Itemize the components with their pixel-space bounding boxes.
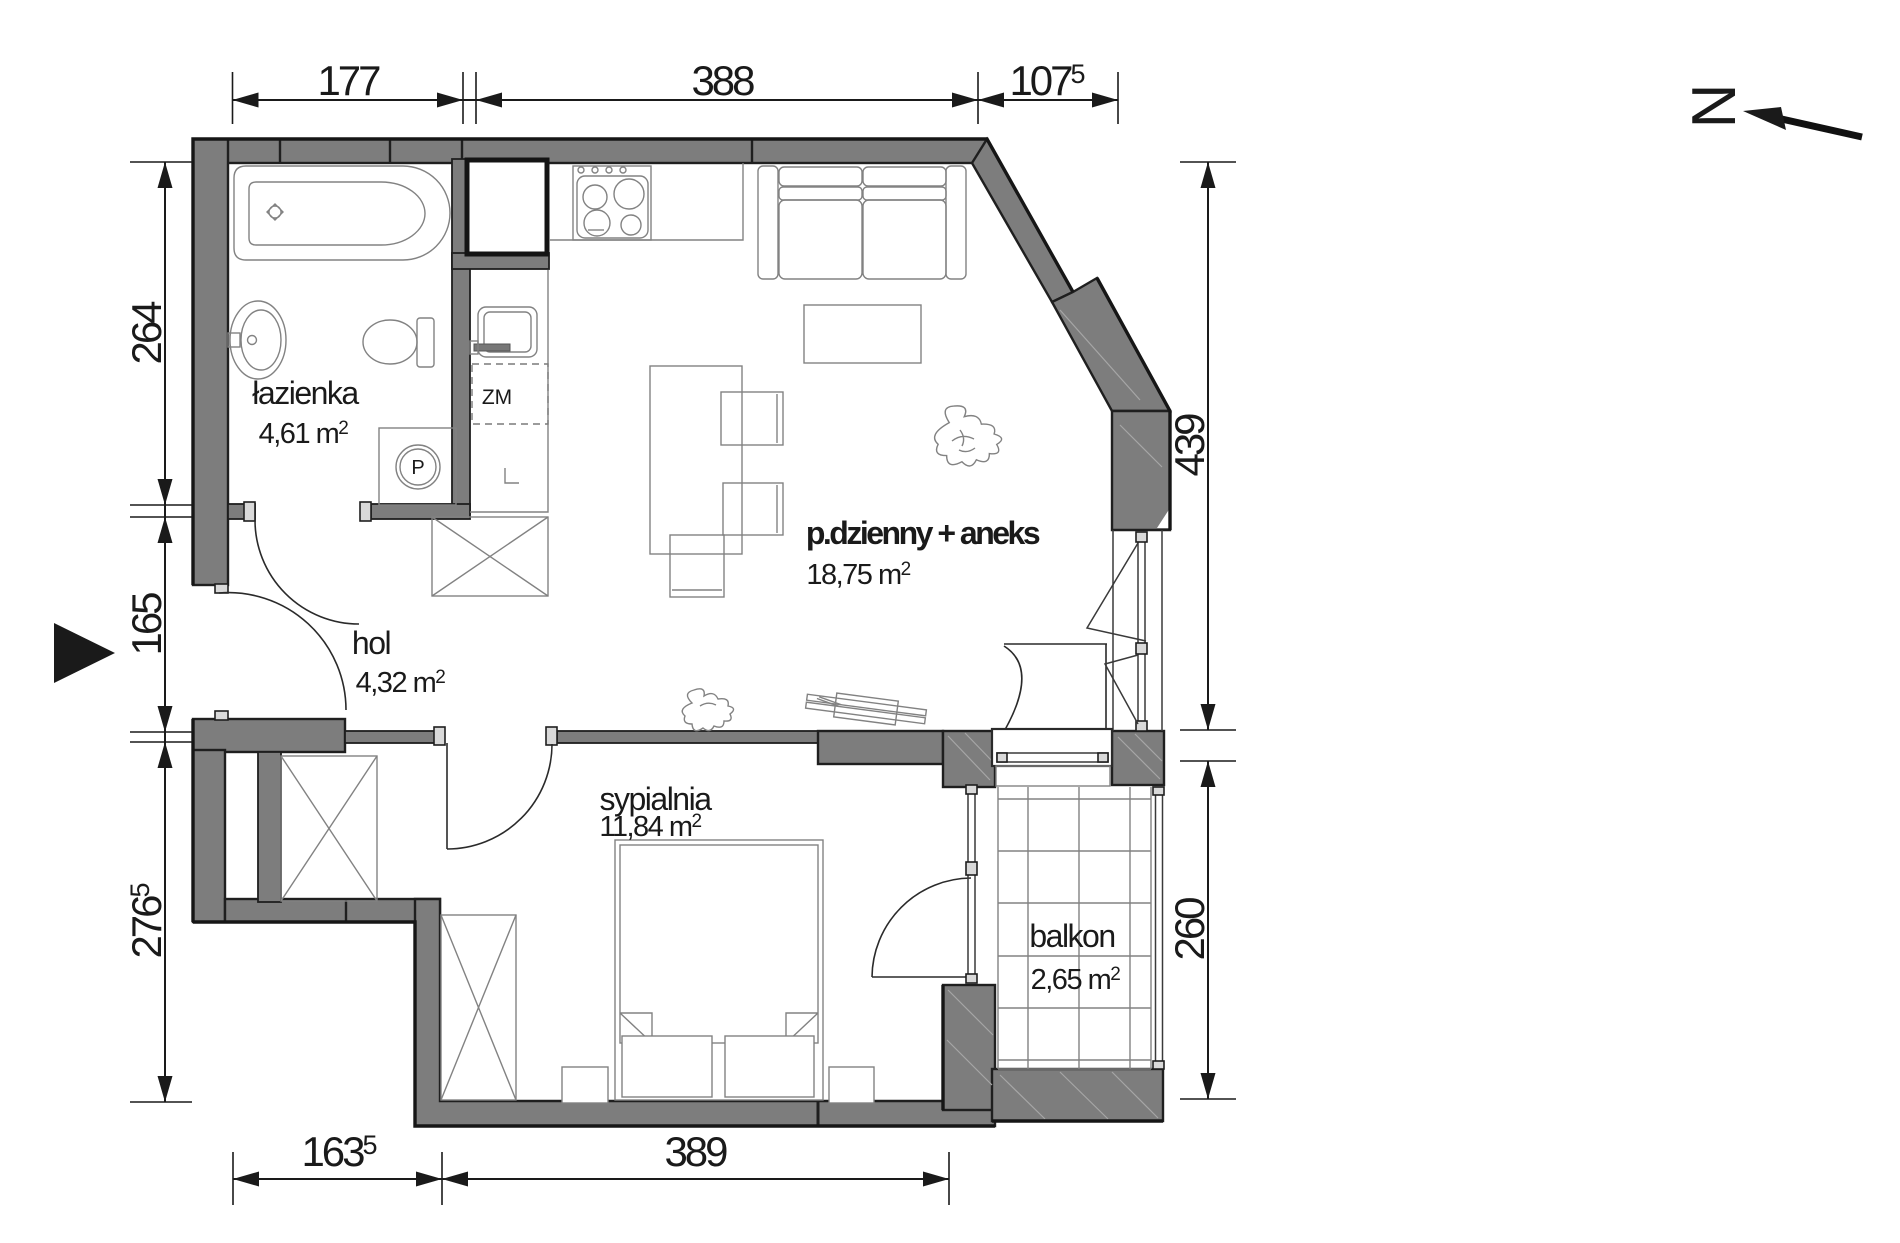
svg-text:4,61 m2: 4,61 m2 [259, 418, 349, 450]
svg-text:264: 264 [123, 301, 170, 365]
svg-text:18,75 m2: 18,75 m2 [806, 559, 910, 591]
svg-text:389: 389 [664, 1128, 727, 1175]
svg-text:177: 177 [317, 57, 380, 104]
svg-text:P: P [411, 457, 424, 479]
svg-text:439: 439 [1166, 414, 1213, 477]
svg-text:260: 260 [1166, 898, 1213, 961]
svg-text:165: 165 [123, 593, 170, 656]
svg-text:4,32 m2: 4,32 m2 [356, 667, 446, 699]
svg-text:N: N [1680, 84, 1749, 129]
svg-text:11,84 m2: 11,84 m2 [599, 811, 701, 843]
svg-text:388: 388 [691, 57, 754, 104]
svg-text:balkon: balkon [1029, 918, 1114, 954]
svg-text:hol: hol [352, 625, 390, 661]
svg-text:łazienka: łazienka [252, 375, 359, 411]
svg-text:p.dzienny + aneks: p.dzienny + aneks [806, 515, 1040, 551]
svg-text:2,65 m2: 2,65 m2 [1031, 964, 1121, 996]
svg-text:ZM: ZM [482, 386, 512, 409]
